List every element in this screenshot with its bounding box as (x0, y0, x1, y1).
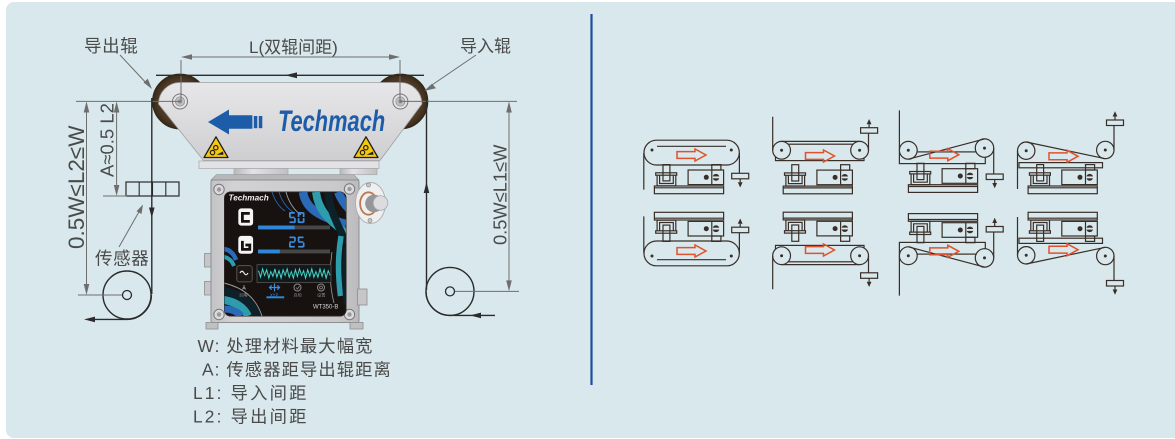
svg-text:自检: 自检 (294, 292, 303, 299)
svg-text:L2: 导出间距: L2: 导出间距 (193, 407, 309, 427)
svg-text:L(双辊间距): L(双辊间距) (249, 38, 338, 57)
svg-text:设置: 设置 (317, 292, 325, 299)
svg-text:0.5W≤L2≤W: 0.5W≤L2≤W (64, 125, 89, 249)
svg-text:A: 传感器距导出辊距离: A: 传感器距导出辊距离 (202, 360, 392, 380)
svg-text:0.5W≤L1≤W: 0.5W≤L1≤W (490, 144, 511, 245)
svg-text:A≈0.5 L2: A≈0.5 L2 (97, 103, 118, 177)
svg-text:Techmach: Techmach (229, 194, 269, 203)
svg-text:导出辊: 导出辊 (84, 36, 138, 56)
svg-text:W: 处理材料最大幅宽: W: 处理材料最大幅宽 (198, 336, 374, 356)
svg-text:Techmach: Techmach (278, 106, 385, 138)
svg-text:导入辊: 导入辊 (460, 37, 511, 56)
svg-text:WT350-B: WT350-B (313, 305, 338, 311)
svg-text:传感器: 传感器 (95, 249, 149, 269)
svg-text:L1: 导入间距: L1: 导入间距 (193, 383, 309, 403)
